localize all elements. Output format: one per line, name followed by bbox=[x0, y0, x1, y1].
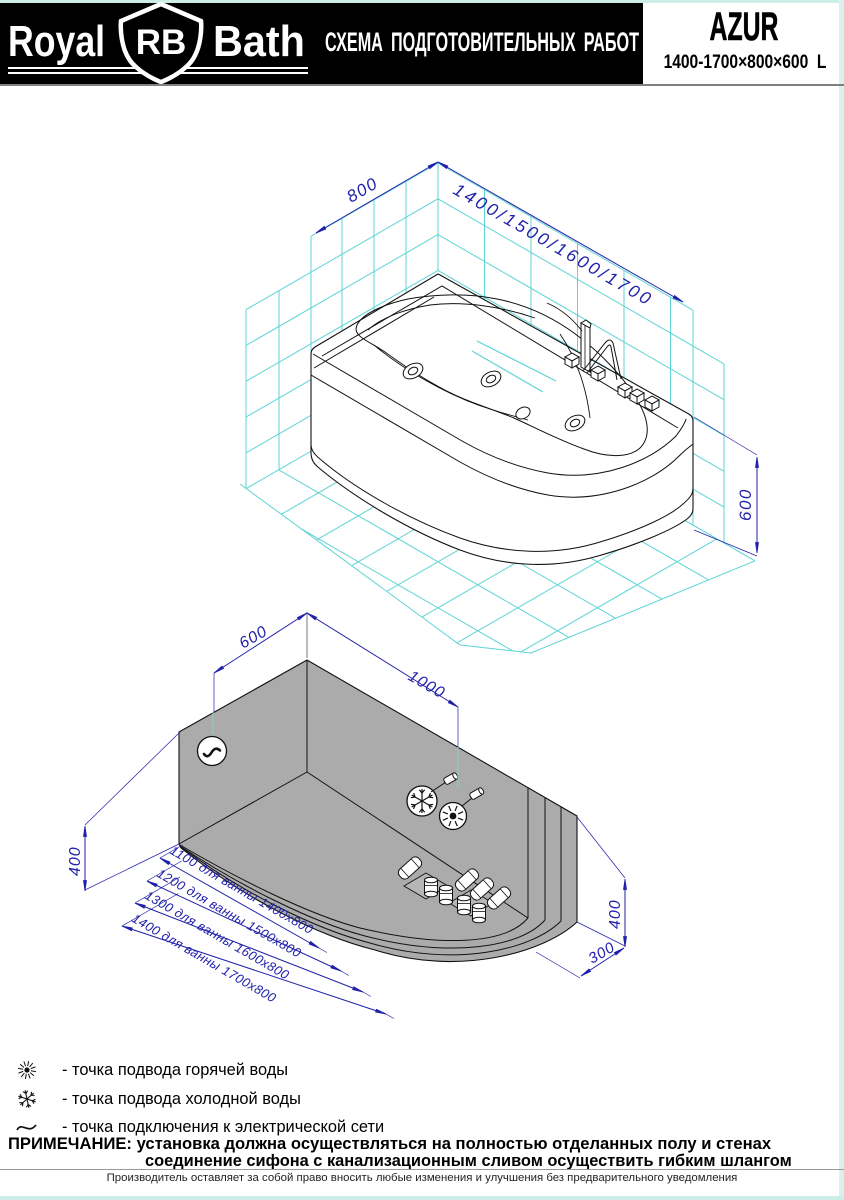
svg-text:400: 400 bbox=[607, 899, 624, 929]
svg-text:800: 800 bbox=[344, 174, 382, 207]
svg-text:300: 300 bbox=[586, 939, 619, 968]
svg-text:1400/1500/1600/1700: 1400/1500/1600/1700 bbox=[450, 179, 657, 310]
svg-text:1000: 1000 bbox=[405, 668, 448, 703]
svg-text:400: 400 bbox=[67, 846, 84, 876]
svg-text:600: 600 bbox=[736, 488, 755, 521]
